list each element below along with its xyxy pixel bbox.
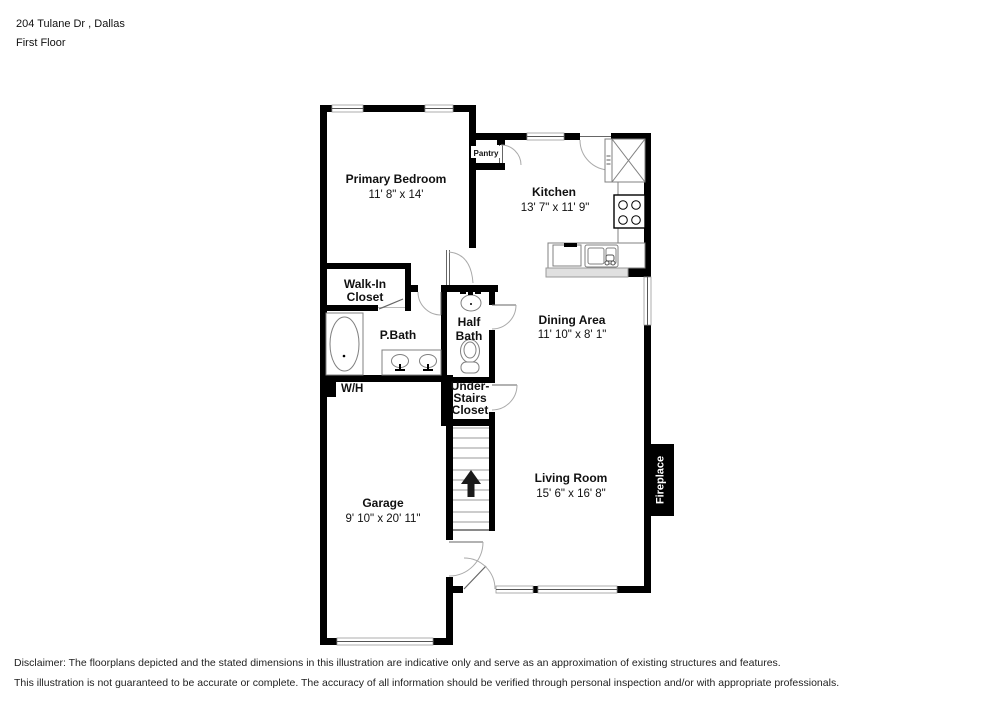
bedroom-door (447, 250, 474, 285)
kitchen-dims: 13' 7" x 11' 9" (521, 202, 590, 214)
staircase (453, 428, 489, 530)
p-bath-door (418, 292, 441, 315)
garage-door-opening (337, 638, 433, 645)
primary-bedroom-dims: 11' 8" x 14' (369, 189, 424, 201)
disclaimer: Disclaimer: The floorplans depicted and … (14, 654, 839, 693)
half-bath-sink-icon (460, 289, 481, 311)
under-stairs-door (492, 385, 517, 410)
half-bath-label-1: Half (458, 315, 482, 329)
fireplace-label: Fireplace (654, 456, 666, 504)
garage-hall-door (449, 542, 483, 576)
living-room-dims: 15' 6" x 16' 8" (536, 488, 605, 500)
floorplan-page: 204 Tulane Dr , Dallas First Floor (0, 0, 1000, 707)
stairs-up-arrow-icon (461, 470, 481, 497)
pantry-label: Pantry (474, 149, 499, 158)
kitchen-label: Kitchen (532, 185, 576, 199)
dining-label: Dining Area (539, 313, 606, 327)
double-vanity-icon (382, 350, 441, 375)
p-bath-fixtures (326, 313, 441, 375)
primary-bedroom-label: Primary Bedroom (346, 172, 447, 186)
garage-label: Garage (362, 496, 404, 510)
living-room-label: Living Room (535, 471, 608, 485)
walk-in-closet-label-1: Walk-In (344, 277, 386, 291)
kitchen-sink-icon (585, 245, 618, 267)
disclaimer-line-1: Disclaimer: The floorplans depicted and … (14, 654, 839, 674)
front-door (464, 558, 495, 589)
kitchen-window (527, 133, 564, 140)
refrigerator-icon (605, 139, 645, 182)
stove-icon (614, 195, 645, 228)
under-stairs-label-3: Closet (452, 403, 489, 417)
pantry-door (500, 145, 522, 165)
half-bath-door (492, 305, 516, 329)
breakfast-bar (546, 268, 628, 277)
living-windows (496, 586, 617, 593)
bathtub-icon (326, 313, 363, 375)
half-bath-label-2: Bath (456, 329, 483, 343)
fireplace: Fireplace (647, 444, 674, 516)
garage-dims: 9' 10" x 20' 11" (345, 513, 420, 525)
disclaimer-line-2: This illustration is not guaranteed to b… (14, 674, 839, 694)
toilet-icon (461, 340, 480, 374)
floorplan-drawing: Fireplace Pantry Primary Bedroom 11' 8" … (0, 0, 1000, 707)
water-heater-label: W/H (341, 383, 363, 395)
dining-window (644, 277, 651, 325)
walk-in-closet-label-2: Closet (347, 290, 384, 304)
p-bath-label: P.Bath (380, 328, 416, 342)
dining-dims: 11' 10" x 8' 1" (538, 329, 607, 341)
